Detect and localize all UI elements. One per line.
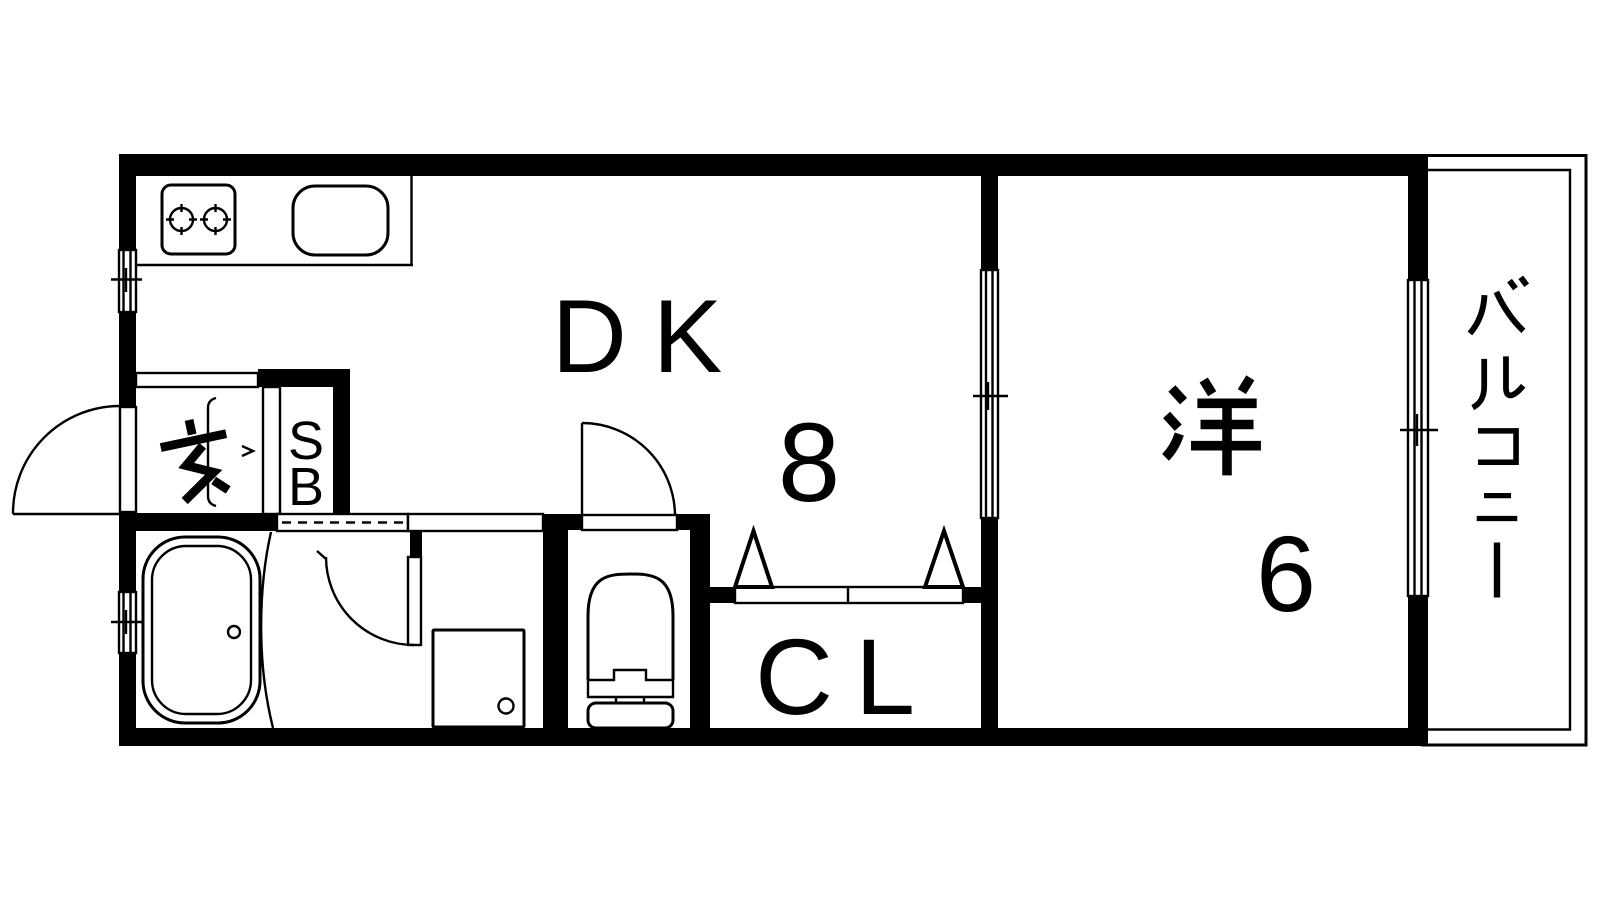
balcony-kana-chouon-glyph — [1465, 538, 1529, 602]
balcony-kana-ko-glyph — [1469, 418, 1525, 474]
shoebox-label: S B — [288, 418, 324, 510]
entrance-kanji-glyph — [145, 407, 249, 511]
balcony-kana-ba-glyph — [1464, 276, 1530, 342]
kitchen-stove-icon — [162, 185, 235, 254]
closet-bifold-doors — [735, 531, 963, 603]
entrance-door — [13, 406, 136, 514]
washroom-door — [317, 551, 421, 645]
entrance-partition-wall — [136, 373, 258, 387]
bathtub-icon — [143, 537, 260, 723]
dk-room-label: DK — [552, 285, 748, 389]
western-room-size-label: 6 — [1256, 520, 1316, 628]
washroom-opening — [408, 514, 543, 531]
bathroom-door-curve — [261, 532, 273, 728]
toilet-icon — [588, 574, 673, 728]
balcony-kana-ru-glyph — [1465, 348, 1529, 412]
toilet-door — [582, 423, 677, 530]
western-room-kanji-glyph — [1156, 372, 1262, 478]
washing-machine-pan-icon — [433, 630, 524, 727]
balcony-label: バルコニー — [1464, 276, 1530, 602]
closet-label: CL — [755, 623, 937, 731]
window-room-divider — [973, 270, 1008, 518]
western-room-label: 洋 — [1156, 372, 1262, 483]
floor-plan: DK 8 CL S B 6 玄 洋 バルコニー — [0, 0, 1600, 900]
window-balcony — [1400, 280, 1438, 596]
balcony-kana-ni-glyph — [1471, 480, 1523, 532]
dk-size-label: 8 — [778, 407, 840, 519]
shoebox-letter-b: B — [288, 464, 324, 510]
shoebox-partition-wall — [263, 387, 280, 514]
entrance-label: 玄 — [145, 407, 250, 516]
window-kitchen — [111, 250, 142, 312]
kitchen-sink-icon — [293, 186, 388, 255]
window-bathroom — [111, 592, 142, 653]
